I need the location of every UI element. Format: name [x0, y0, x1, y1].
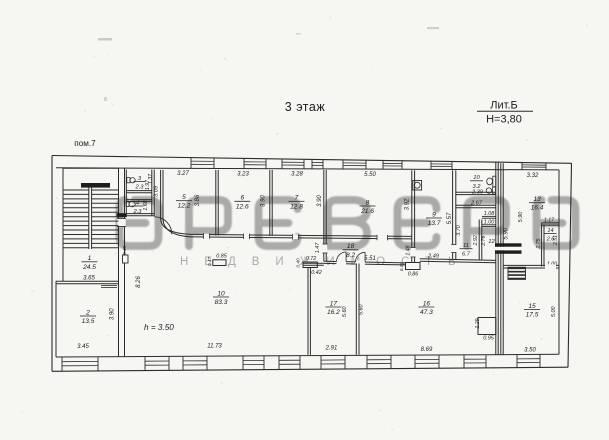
svg-text:17: 17 [330, 300, 338, 307]
svg-text:1.17: 1.17 [544, 218, 555, 224]
svg-text:3.45: 3.45 [77, 344, 89, 350]
svg-text:1.48: 1.48 [406, 245, 412, 255]
svg-text:5.60: 5.60 [342, 307, 348, 318]
svg-text:12.8: 12.8 [290, 203, 303, 210]
svg-text:12.2: 12.2 [178, 203, 191, 210]
svg-text:2.91: 2.91 [325, 346, 338, 352]
svg-text:5.00: 5.00 [551, 307, 557, 318]
svg-text:0.86: 0.86 [408, 272, 419, 278]
svg-text:6.7: 6.7 [462, 252, 471, 258]
svg-text:4: 4 [136, 200, 139, 206]
svg-text:8.26: 8.26 [136, 276, 142, 288]
svg-text:1.00: 1.00 [484, 220, 495, 226]
svg-text:18: 18 [347, 243, 355, 250]
svg-text:1: 1 [88, 255, 92, 262]
svg-text:13: 13 [533, 196, 541, 203]
svg-text:16.4: 16.4 [531, 205, 544, 212]
svg-text:3.09: 3.09 [154, 186, 160, 197]
svg-text:2.67: 2.67 [470, 200, 483, 206]
svg-text:1.47: 1.47 [315, 242, 321, 253]
svg-text:0.16: 0.16 [399, 262, 404, 271]
svg-text:83.3: 83.3 [215, 299, 228, 306]
svg-text:Н=3,80: Н=3,80 [486, 114, 522, 126]
svg-text:3.65: 3.65 [83, 276, 95, 282]
svg-text:h = 3.50: h = 3.50 [144, 323, 174, 332]
svg-text:3.90: 3.90 [317, 195, 323, 207]
svg-text:3.23: 3.23 [237, 172, 249, 178]
svg-text:3.28: 3.28 [291, 172, 303, 178]
svg-text:11.73: 11.73 [207, 344, 222, 350]
svg-text:16: 16 [423, 300, 431, 307]
svg-text:11: 11 [463, 243, 469, 249]
svg-text:47.3: 47.3 [420, 309, 433, 316]
svg-text:6: 6 [240, 195, 244, 202]
svg-text:15: 15 [528, 303, 536, 310]
svg-text:2.3: 2.3 [132, 209, 142, 215]
svg-text:2.3: 2.3 [134, 185, 144, 191]
svg-text:3.32: 3.32 [527, 173, 539, 179]
svg-text:2.75: 2.75 [536, 238, 542, 249]
svg-text:5.60: 5.60 [359, 305, 365, 316]
svg-text:2.39: 2.39 [471, 190, 483, 196]
svg-text:0.42: 0.42 [311, 270, 322, 276]
svg-text:1.68: 1.68 [143, 200, 149, 210]
svg-text:0.47: 0.47 [207, 257, 213, 267]
svg-text:8: 8 [366, 199, 370, 206]
svg-text:2: 2 [85, 309, 90, 316]
svg-text:3.27: 3.27 [177, 171, 189, 177]
svg-text:5.51: 5.51 [364, 256, 376, 262]
svg-text:0.72: 0.72 [306, 256, 317, 262]
svg-text:24.5: 24.5 [82, 264, 96, 271]
svg-text:9: 9 [432, 211, 436, 218]
svg-text:13.7: 13.7 [428, 220, 441, 227]
svg-text:17.5: 17.5 [526, 312, 539, 319]
svg-text:5.50: 5.50 [364, 172, 376, 178]
svg-text:5: 5 [182, 194, 186, 201]
svg-text:14: 14 [547, 228, 553, 234]
svg-text:2.76: 2.76 [481, 236, 487, 247]
svg-text:5.90: 5.90 [518, 212, 524, 223]
svg-text:8.69: 8.69 [421, 347, 433, 353]
svg-text:Лит.Б: Лит.Б [490, 100, 517, 112]
svg-text:16.2: 16.2 [327, 309, 340, 316]
svg-text:21.6: 21.6 [360, 208, 374, 215]
svg-text:пом.7: пом.7 [74, 139, 96, 148]
svg-text:2.51: 2.51 [553, 235, 559, 246]
svg-text:5.90: 5.90 [504, 227, 510, 239]
svg-text:3.86: 3.86 [195, 194, 201, 206]
svg-text:3.70: 3.70 [456, 225, 462, 236]
svg-text:3.92: 3.92 [405, 198, 411, 210]
svg-text:2.49: 2.49 [427, 254, 439, 260]
svg-text:1.29: 1.29 [475, 318, 481, 328]
svg-text:1.08: 1.08 [484, 211, 495, 217]
svg-text:3.90: 3.90 [110, 308, 116, 320]
svg-text:3 этаж: 3 этаж [285, 100, 326, 114]
svg-text:12.6: 12.6 [236, 203, 249, 210]
svg-text:3.50: 3.50 [524, 348, 536, 354]
svg-text:12: 12 [488, 239, 495, 245]
svg-text:0.85: 0.85 [216, 254, 227, 260]
svg-text:10: 10 [217, 290, 225, 297]
svg-text:1.37: 1.37 [148, 173, 154, 184]
svg-text:10: 10 [473, 175, 480, 181]
svg-text:8.2: 8.2 [346, 252, 355, 259]
svg-text:3.90: 3.90 [261, 195, 267, 207]
svg-text:0.95: 0.95 [483, 336, 494, 342]
svg-text:13.5: 13.5 [82, 318, 95, 325]
svg-text:2.92: 2.92 [473, 235, 479, 246]
svg-text:7: 7 [295, 195, 299, 202]
svg-text:0.49: 0.49 [122, 246, 128, 256]
svg-text:0.40: 0.40 [296, 258, 302, 268]
